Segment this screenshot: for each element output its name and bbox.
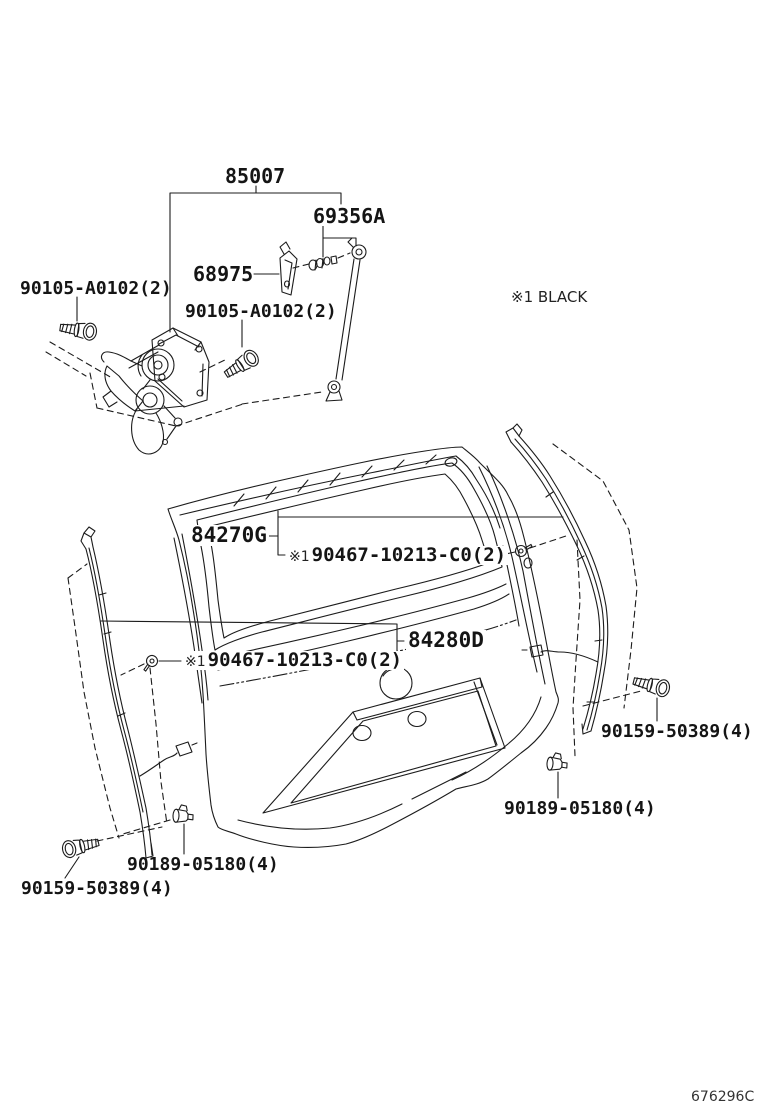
part-label-90189-right: 90189-05180(4)	[504, 800, 656, 818]
wiper-motor-assembly	[102, 328, 209, 454]
part-label-85007: 85007	[225, 166, 285, 186]
ref-mark-1: ※1	[289, 549, 310, 565]
part-label-90189-left: 90189-05180(4)	[127, 856, 279, 874]
parts-diagram-page: 85007 69356A 68975 90105-A0102(2) 90105-…	[0, 0, 760, 1112]
ref-mark-2: ※1	[185, 654, 206, 670]
sheet-code: 676296C	[691, 1090, 754, 1104]
color-note: ※1 BLACK	[511, 290, 587, 305]
part-label-90105-a0102-left: 90105-A0102(2)	[20, 280, 172, 298]
part-label-68975: 68975	[193, 264, 253, 284]
part-label-90159-right: 90159-50389(4)	[601, 723, 753, 741]
part-label-69356A: 69356A	[311, 206, 387, 226]
part-number-90467-right: 90467-10213-C0(2)	[312, 544, 506, 566]
part-label-84270G: 84270G	[189, 525, 269, 546]
part-label-90105-a0102-center: 90105-A0102(2)	[185, 303, 337, 321]
part-label-90467-right: ※190467-10213-C0(2)	[287, 546, 508, 565]
part-label-90159-left: 90159-50389(4)	[21, 880, 173, 898]
fastener-bolts	[59, 319, 671, 859]
part-number-90467-left: 90467-10213-C0(2)	[208, 649, 402, 671]
stay-bracket	[280, 242, 297, 295]
part-label-84280D: 84280D	[406, 630, 486, 651]
garnish-strip-right	[506, 424, 608, 734]
back-door-panel	[168, 447, 558, 847]
part-label-90467-left: ※190467-10213-C0(2)	[183, 651, 404, 670]
